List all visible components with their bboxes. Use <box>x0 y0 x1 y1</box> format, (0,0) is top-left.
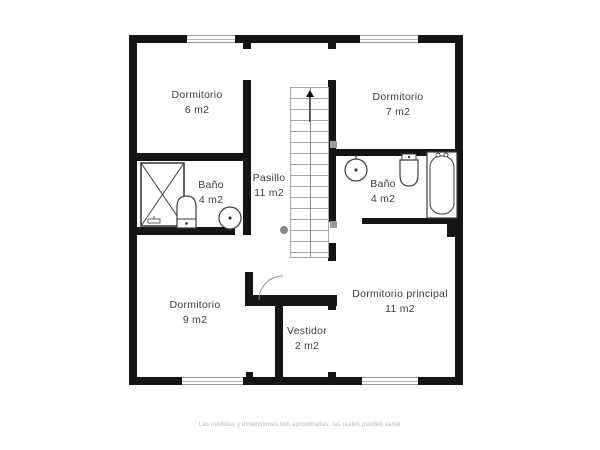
room-area: 2 m2 <box>287 339 327 354</box>
door-stop-dot <box>280 226 288 234</box>
room-label-dormitorio-principal: Dormitorio principal 11 m2 <box>352 287 447 316</box>
room-label-pasillo: Pasillo 11 m2 <box>253 171 286 200</box>
room-area: 4 m2 <box>370 192 396 207</box>
stairs-up-arrow-shaft <box>309 96 311 122</box>
room-label-dormitorio-7: Dormitorio 7 m2 <box>373 90 424 119</box>
room-label-dormitorio-9: Dormitorio 9 m2 <box>170 298 221 327</box>
sink-icon <box>343 155 369 183</box>
window <box>187 35 235 43</box>
wall <box>243 43 251 49</box>
sink-icon <box>217 205 243 231</box>
room-area: 7 m2 <box>373 105 424 120</box>
room-area: 11 m2 <box>352 302 447 317</box>
room-name: Dormitorio <box>170 298 221 313</box>
wall <box>129 35 187 43</box>
room-name: Pasillo <box>253 171 286 186</box>
wall <box>235 35 360 43</box>
room-label-dormitorio-6: Dormitorio 6 m2 <box>172 88 223 117</box>
room-label-bano-right: Baño 4 m2 <box>370 177 396 206</box>
wall <box>328 43 336 49</box>
room-area: 6 m2 <box>172 103 223 118</box>
toilet-icon <box>398 153 420 187</box>
bathtub-icon <box>426 151 458 219</box>
wall <box>328 80 336 222</box>
room-area: 9 m2 <box>170 313 221 328</box>
wall <box>328 372 336 377</box>
wall <box>129 35 137 385</box>
toilet-icon <box>174 195 199 229</box>
room-name: Dormitorio <box>373 90 424 105</box>
room-name: Baño <box>370 177 396 192</box>
floorplan-page: Dormitorio 6 m2 Dormitorio 7 m2 Baño 4 m… <box>0 0 600 450</box>
wall <box>243 377 362 385</box>
window <box>360 35 418 43</box>
wall <box>328 295 336 310</box>
room-name: Baño <box>198 178 224 193</box>
wall <box>328 243 336 261</box>
door-swing-arc <box>257 274 284 301</box>
floor-plan: Dormitorio 6 m2 Dormitorio 7 m2 Baño 4 m… <box>0 0 600 450</box>
wall <box>246 372 253 377</box>
room-label-vestidor: Vestidor 2 m2 <box>287 324 327 353</box>
wall <box>243 80 251 235</box>
door-leaf-mark <box>330 141 337 148</box>
window <box>182 377 243 385</box>
wall <box>447 223 455 237</box>
wall <box>137 153 251 161</box>
room-name: Dormitorio <box>172 88 223 103</box>
room-label-bano-left: Baño 4 m2 <box>198 178 224 207</box>
wall <box>275 306 283 377</box>
room-area: 11 m2 <box>253 186 286 201</box>
staircase <box>290 87 329 258</box>
window <box>362 377 418 385</box>
disclaimer-text: Las medidas y dimensiones son aproximada… <box>0 422 600 428</box>
door-leaf-mark <box>330 221 337 228</box>
room-name: Vestidor <box>287 324 327 339</box>
room-name: Dormitorio principal <box>352 287 447 302</box>
room-area: 4 m2 <box>198 193 224 208</box>
